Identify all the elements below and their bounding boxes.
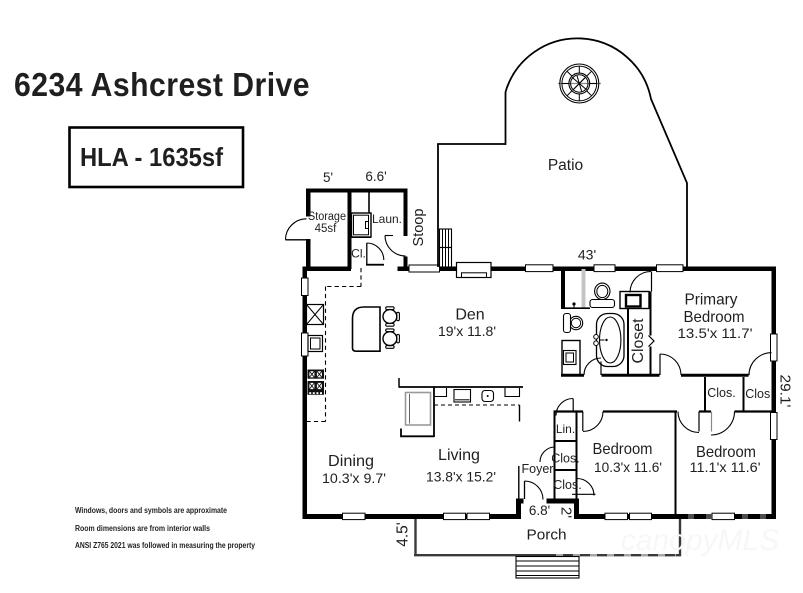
svg-text:Lin.: Lin. [556,422,575,436]
svg-text:Living: Living [438,447,480,464]
svg-text:ANSI Z765 2021 was followed in: ANSI Z765 2021 was followed in measuring… [75,541,255,550]
svg-text:Bedroom: Bedroom [684,309,745,326]
svg-text:Porch: Porch [527,527,567,544]
svg-text:Windows, doors and symbols are: Windows, doors and symbols are approxima… [75,506,227,515]
svg-text:19'x 11.8': 19'x 11.8' [438,323,496,339]
svg-text:Closet: Closet [630,318,647,364]
svg-text:Patio: Patio [548,157,583,174]
svg-text:6.8': 6.8' [529,503,550,518]
svg-text:Clos.: Clos. [551,452,579,466]
svg-text:6234 Ashcrest Drive: 6234 Ashcrest Drive [14,66,310,103]
svg-text:Clos.: Clos. [707,386,735,400]
svg-text:Dining: Dining [328,453,374,470]
svg-text:10.3'x 9.7': 10.3'x 9.7' [322,471,386,486]
svg-text:13.5'x 11.7': 13.5'x 11.7' [678,326,753,341]
svg-text:10.3'x 11.6': 10.3'x 11.6' [594,460,662,475]
svg-text:Cl.: Cl. [351,247,366,261]
svg-text:5': 5' [323,170,333,185]
svg-text:2': 2' [558,507,575,518]
svg-text:13.8'x 15.2': 13.8'x 15.2' [426,470,496,485]
svg-text:43': 43' [578,247,596,263]
svg-text:Storage: Storage [308,211,346,223]
svg-text:Laun.: Laun. [372,212,402,226]
svg-text:Clos.: Clos. [745,387,773,401]
svg-text:Room dimensions are from inter: Room dimensions are from interior walls [75,524,210,533]
svg-text:Bedroom: Bedroom [696,444,756,461]
svg-text:Foyer: Foyer [522,462,554,476]
svg-text:Primary: Primary [685,292,738,309]
svg-text:29.1': 29.1' [777,375,793,408]
svg-text:6.6': 6.6' [365,169,386,184]
svg-text:HLA - 1635sf: HLA - 1635sf [80,142,223,172]
svg-text:4.5': 4.5' [395,522,412,547]
svg-text:45sf: 45sf [315,223,338,235]
svg-text:Stoop: Stoop [411,209,427,247]
svg-text:canopyMLS: canopyMLS [621,524,779,557]
svg-text:Clos.: Clos. [553,478,581,492]
svg-text:11.1'x 11.6': 11.1'x 11.6' [690,460,761,475]
svg-text:Den: Den [455,307,484,324]
svg-text:Bedroom: Bedroom [593,441,653,458]
